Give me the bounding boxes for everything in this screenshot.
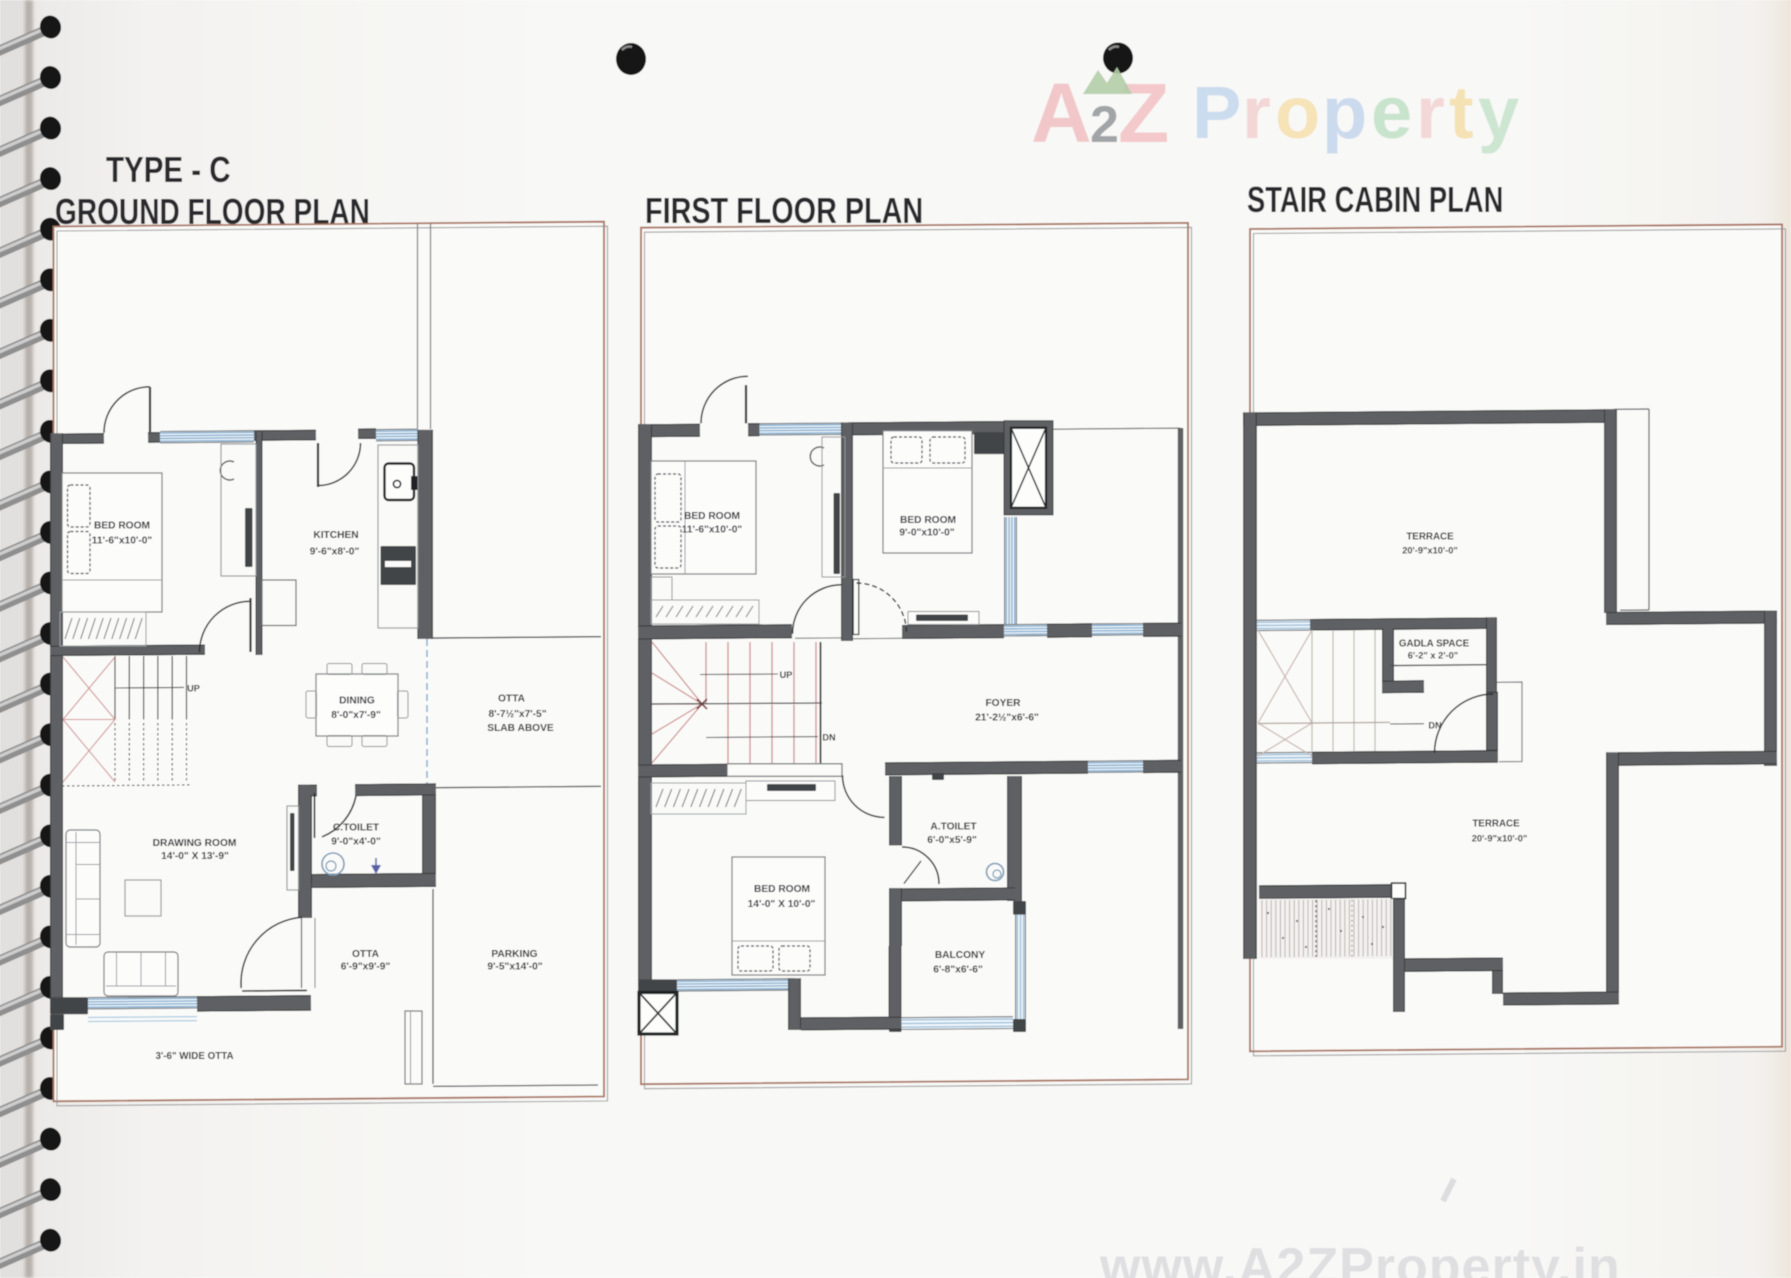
svg-text:P: P xyxy=(1192,71,1241,154)
svg-text:SLAB ABOVE: SLAB ABOVE xyxy=(487,723,554,734)
svg-text:8'-7½"x7'-5": 8'-7½"x7'-5" xyxy=(488,709,546,720)
svg-text:STAIR CABIN PLAN: STAIR CABIN PLAN xyxy=(1247,179,1503,220)
svg-text:BED ROOM: BED ROOM xyxy=(900,515,956,526)
svg-text:p: p xyxy=(1322,71,1367,154)
svg-text:OTTA: OTTA xyxy=(498,694,526,705)
svg-text:2: 2 xyxy=(1090,96,1119,154)
svg-text:BED ROOM: BED ROOM xyxy=(684,511,740,522)
svg-text:y: y xyxy=(1478,71,1519,154)
svg-text:FOYER: FOYER xyxy=(985,698,1021,709)
svg-text:6'-9"x9'-9": 6'-9"x9'-9" xyxy=(341,962,391,973)
svg-text:DN: DN xyxy=(822,733,836,743)
svg-text:6'-8"x6'-6": 6'-8"x6'-6" xyxy=(933,965,983,976)
svg-text:t: t xyxy=(1449,71,1474,154)
svg-text:A.TOILET: A.TOILET xyxy=(930,822,977,833)
svg-text:OTTA: OTTA xyxy=(352,949,380,960)
svg-text:GADLA SPACE: GADLA SPACE xyxy=(1399,639,1470,650)
svg-text:9'-0"x4'-0": 9'-0"x4'-0" xyxy=(331,837,381,848)
svg-text:TYPE - C: TYPE - C xyxy=(106,149,231,189)
svg-text:20'-9"x10'-0": 20'-9"x10'-0" xyxy=(1402,546,1458,556)
svg-text:DN: DN xyxy=(1428,721,1442,731)
svg-text:DINING: DINING xyxy=(339,696,375,707)
svg-text:UP: UP xyxy=(780,670,793,680)
svg-text:6'-0"x5'-9": 6'-0"x5'-9" xyxy=(927,835,977,846)
svg-text:KITCHEN: KITCHEN xyxy=(313,530,358,541)
svg-text:BED ROOM: BED ROOM xyxy=(754,884,810,895)
svg-text:21'-2½"x6'-6": 21'-2½"x6'-6" xyxy=(975,713,1039,724)
svg-text:e: e xyxy=(1371,71,1412,154)
svg-text:TERRACE: TERRACE xyxy=(1406,532,1454,543)
svg-text:FIRST FLOOR PLAN: FIRST FLOOR PLAN xyxy=(645,190,923,231)
svg-text:PARKING: PARKING xyxy=(491,949,537,960)
svg-text:14'-0" X 13'-9": 14'-0" X 13'-9" xyxy=(161,851,229,862)
svg-text:C.TOILET: C.TOILET xyxy=(333,823,380,834)
svg-text:11'-6"x10'-0": 11'-6"x10'-0" xyxy=(92,536,153,547)
svg-text:r: r xyxy=(1242,71,1271,154)
svg-text:BALCONY: BALCONY xyxy=(935,950,986,961)
svg-text:9'-5"x14'-0": 9'-5"x14'-0" xyxy=(487,962,542,973)
svg-text:9'-0"x10'-0": 9'-0"x10'-0" xyxy=(899,528,954,539)
svg-text:r: r xyxy=(1416,71,1445,154)
svg-text:Z: Z xyxy=(1118,66,1169,160)
svg-text:o: o xyxy=(1275,71,1320,154)
svg-text:6'-2" x 2'-0": 6'-2" x 2'-0" xyxy=(1408,651,1458,661)
svg-text:DRAWING ROOM: DRAWING ROOM xyxy=(153,838,237,849)
svg-text:11'-6"x10'-0": 11'-6"x10'-0" xyxy=(682,525,743,536)
svg-text:BED ROOM: BED ROOM xyxy=(94,521,150,532)
svg-text:20'-9"x10'-0": 20'-9"x10'-0" xyxy=(1472,834,1528,844)
svg-text:TERRACE: TERRACE xyxy=(1472,819,1520,830)
svg-text:UP: UP xyxy=(187,684,200,694)
svg-text:9'-6"x8'-0": 9'-6"x8'-0" xyxy=(310,547,360,558)
svg-text:8'-0"x7'-9": 8'-0"x7'-9" xyxy=(331,710,381,721)
svg-text:3'-6" WIDE OTTA: 3'-6" WIDE OTTA xyxy=(155,1051,233,1062)
svg-text:A: A xyxy=(1031,66,1090,160)
svg-text:www.A2ZProperty.in: www.A2ZProperty.in xyxy=(1099,1238,1621,1278)
svg-text:14'-0" X 10'-0": 14'-0" X 10'-0" xyxy=(748,899,816,910)
